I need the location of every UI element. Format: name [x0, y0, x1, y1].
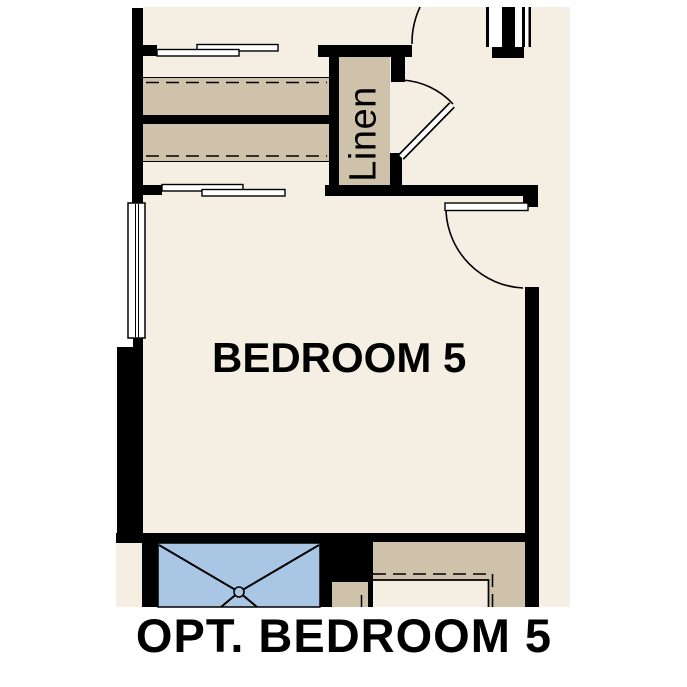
- closet-shelves: [143, 77, 339, 162]
- left-wall-step: [133, 338, 143, 348]
- floorplan-canvas: Linen BEDROOM 5 OPT. BEDROOM 5: [0, 0, 687, 687]
- closet-divider-wall: [143, 115, 339, 124]
- left-wall-lower: [117, 347, 143, 533]
- bypass-door-panel: [157, 50, 239, 57]
- window-left: [128, 203, 145, 338]
- linen-jamb-upper: [391, 57, 405, 82]
- wall-stub-base: [492, 47, 524, 58]
- window-jamb-line: [522, 7, 525, 47]
- bedroom-door-leaf: [445, 203, 528, 211]
- shower: [158, 543, 320, 607]
- right-wall: [525, 287, 539, 607]
- bedroom-bottom-wall: [116, 533, 539, 543]
- top-wall-right: [318, 45, 412, 57]
- wall-stub-center: [502, 7, 515, 47]
- window-jamb-line: [529, 7, 532, 47]
- window-jamb-line: [486, 7, 489, 47]
- left-wall-upper: [132, 8, 143, 203]
- hall-wall-long: [325, 185, 537, 196]
- closet-jamb-left-top: [143, 45, 157, 56]
- linen-jamb-lower: [390, 153, 402, 185]
- linen-label: Linen: [343, 86, 386, 181]
- shower-drain: [234, 587, 244, 597]
- counter-inset: [373, 580, 489, 607]
- linen-wall-left: [329, 56, 339, 185]
- counter-notch: [332, 582, 368, 607]
- room-label: BEDROOM 5: [212, 337, 466, 379]
- floor-left-strip: [116, 543, 143, 607]
- plan-caption: OPT. BEDROOM 5: [136, 612, 552, 659]
- window-frame: [128, 203, 145, 338]
- closet-jamb-left-bottom: [142, 185, 162, 195]
- bypass-door-panel: [202, 190, 285, 197]
- shower-wall-left: [142, 543, 158, 607]
